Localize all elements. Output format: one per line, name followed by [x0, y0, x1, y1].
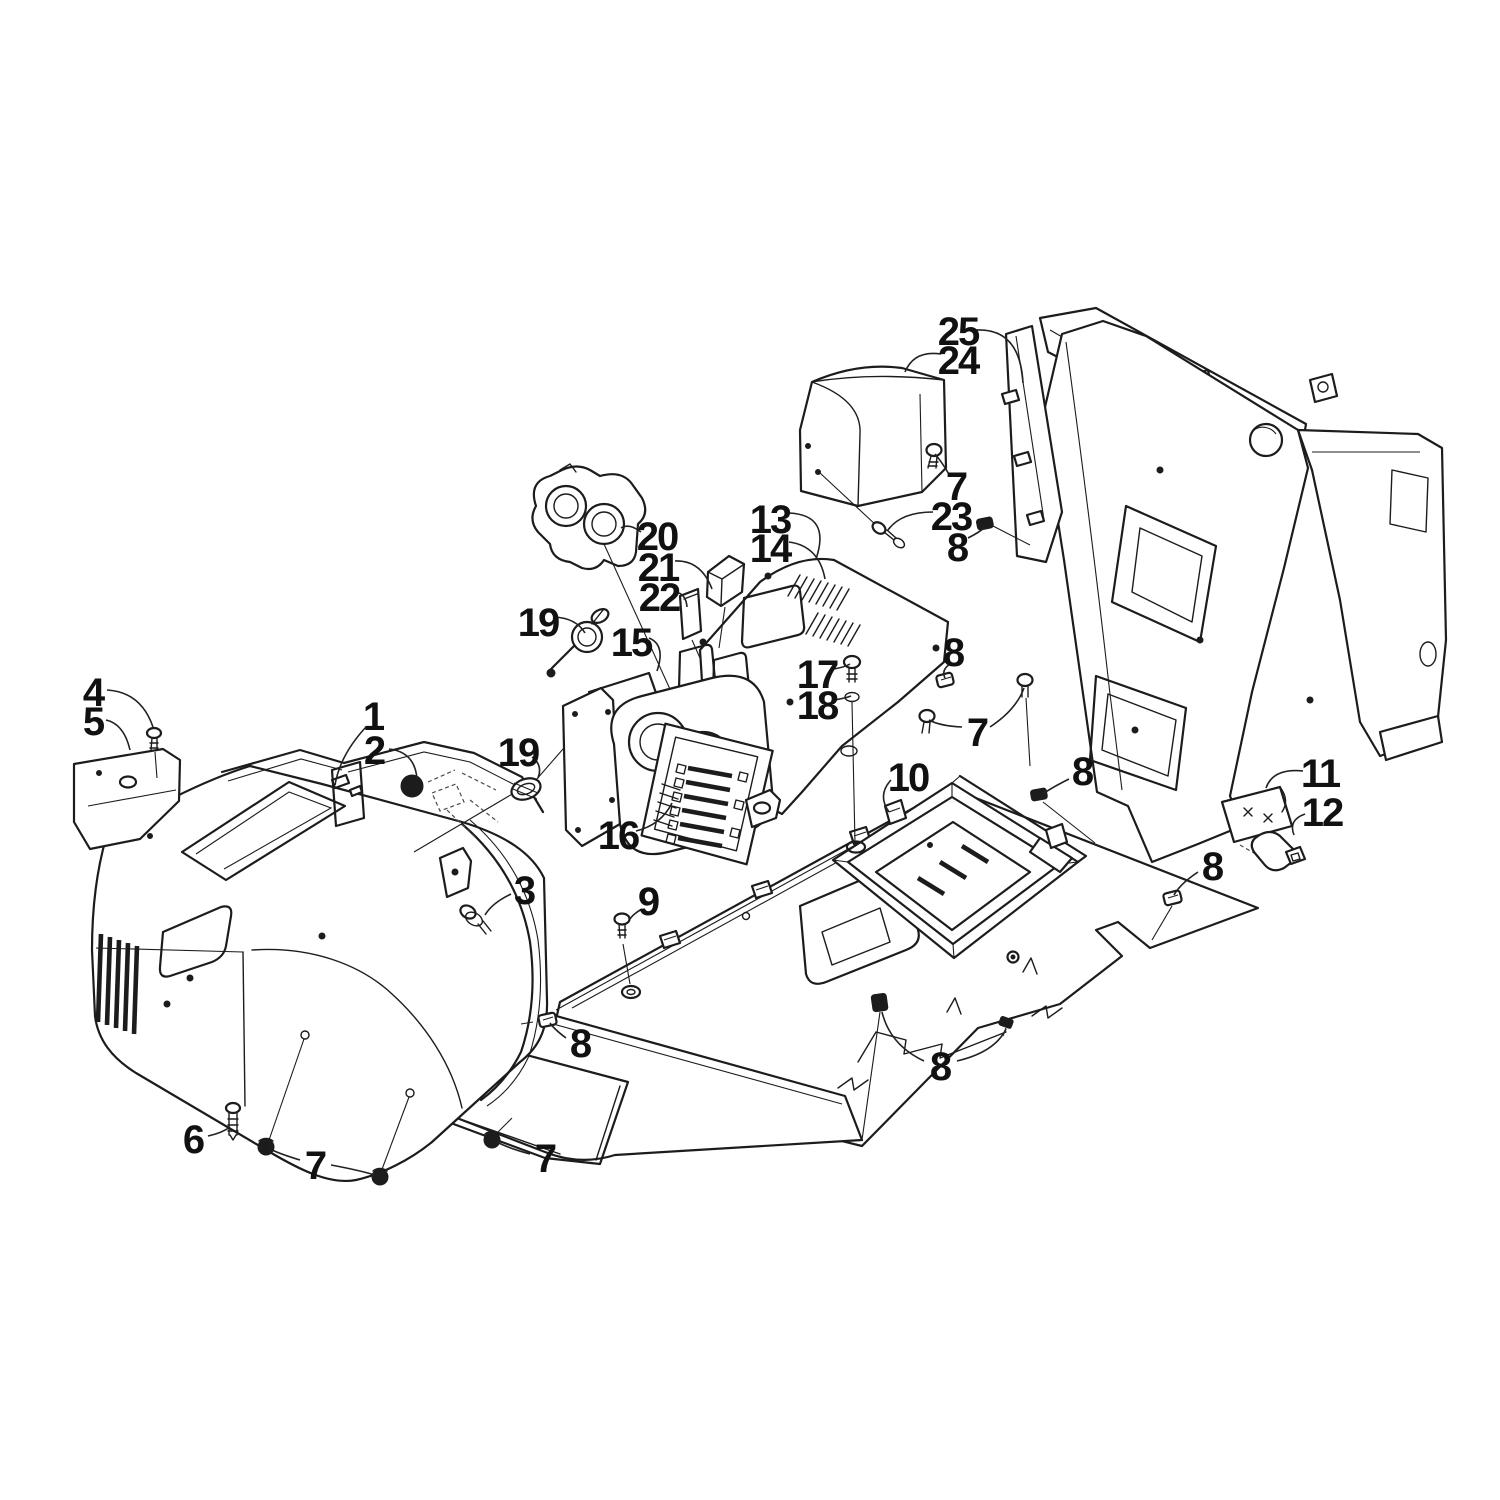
callout-number: 7 [305, 1144, 326, 1188]
exploded-parts-diagram: 2524723813142021221915171887451219163910… [0, 0, 1500, 1500]
callout-5-17: 5 [83, 700, 130, 750]
callout-number: 8 [930, 1045, 952, 1089]
callout-number: 11 [1301, 752, 1341, 796]
callout-number: 18 [797, 684, 839, 728]
storage-box-cover [800, 367, 946, 550]
callout-15-11: 15 [611, 621, 660, 671]
callout-number: 7 [967, 711, 988, 755]
callout-2-19: 2 [364, 729, 417, 779]
callout-7-15: 7 [929, 688, 1024, 755]
callout-number: 19 [498, 731, 539, 775]
leader-line [208, 1127, 230, 1136]
leader-line [389, 749, 417, 779]
callout-number: 3 [514, 869, 535, 913]
callout-12-27: 12 [1292, 791, 1343, 835]
callout-8-4: 8 [947, 526, 985, 570]
callout-number: 24 [938, 339, 981, 383]
leader-line [107, 690, 153, 727]
callout-number: 2 [364, 729, 385, 773]
callout-number: 5 [83, 700, 105, 744]
strap-12 [1252, 832, 1305, 870]
callout-number: 8 [570, 1022, 592, 1066]
callout-number: 10 [888, 756, 929, 800]
callout-number: 8 [943, 631, 965, 675]
callout-number: 8 [1202, 845, 1224, 889]
callout-19-20: 19 [498, 731, 540, 778]
callout-number: 8 [1072, 750, 1094, 794]
callout-8-14: 8 [943, 631, 965, 678]
callout-9-23: 9 [630, 880, 659, 924]
rear-back-panel-assembly [1040, 308, 1446, 862]
leader-line [1266, 771, 1303, 788]
screw-23 [870, 520, 906, 550]
leader-line [990, 688, 1024, 727]
callout-8-25: 8 [1043, 750, 1094, 794]
callout-number: 19 [518, 601, 559, 645]
leader-line [789, 513, 820, 559]
callout-number: 14 [750, 527, 793, 571]
callout-number: 8 [947, 526, 969, 570]
leader-line [106, 720, 130, 750]
callout-number: 15 [611, 621, 653, 665]
parts-diagram-page: 2524723813142021221915171887451219163910… [0, 0, 1500, 1500]
callout-number: 7 [535, 1137, 556, 1181]
callout-number: 9 [638, 880, 659, 924]
leader-line [905, 353, 941, 372]
leader-line [1043, 779, 1069, 794]
console-base [563, 676, 780, 866]
callout-number: 12 [1302, 791, 1343, 835]
leader-line [929, 720, 962, 727]
callout-number: 6 [183, 1118, 204, 1162]
leader-line [888, 512, 933, 530]
callout-number: 22 [639, 576, 680, 620]
callout-number: 16 [598, 814, 639, 858]
